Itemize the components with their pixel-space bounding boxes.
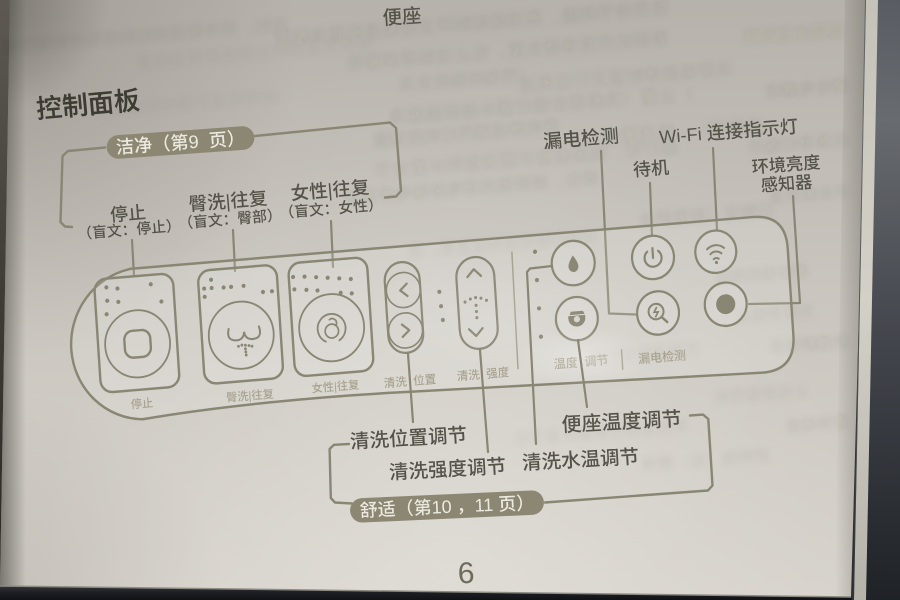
svg-text:10: 10 (431, 497, 452, 518)
svg-text:9: 9 (188, 132, 200, 153)
svg-text:11: 11 (474, 495, 494, 516)
svg-text:6: 6 (457, 557, 475, 591)
svg-text:Wi-Fi: Wi-Fi (658, 123, 702, 147)
